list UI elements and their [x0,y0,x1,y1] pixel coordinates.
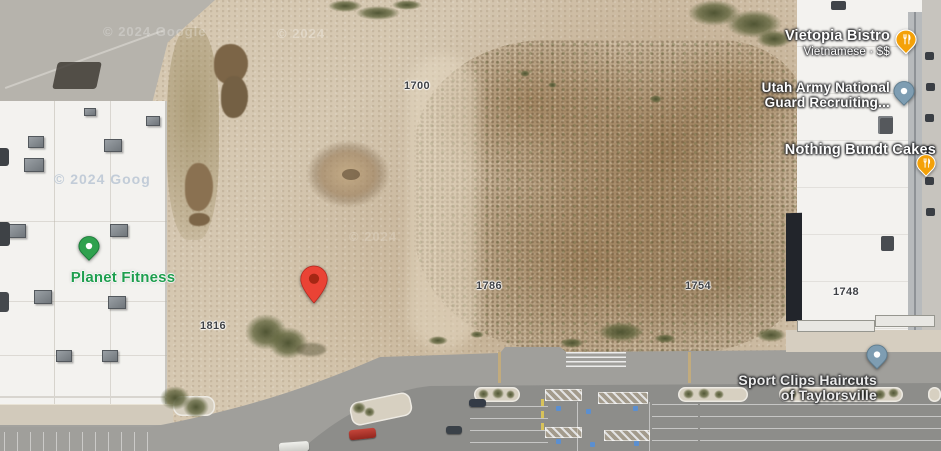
storefront-awning [797,320,875,332]
roof-unit [831,1,846,10]
yellow-curb-dash [541,411,544,418]
poi-sublabel-vietopia-bistro[interactable]: Vietnamese · $$ [740,46,890,58]
poi-label-planet-fitness[interactable]: Planet Fitness [38,270,208,286]
parcel-number-1816: 1816 [191,320,235,332]
light-pole [688,352,691,383]
light-pole [498,352,501,383]
roof-unit [881,236,894,251]
poi-label-utah-guard-line2[interactable]: Guard Recruiting... [720,96,890,110]
parcel-number-1786: 1786 [467,280,511,292]
storefront-awning [875,315,935,327]
roof-unit [878,116,893,134]
restaurant-pin-icon[interactable] [895,27,917,57]
parcel-number-1700: 1700 [395,80,439,92]
parcel-number-1754: 1754 [676,280,720,292]
building-shadow-strip [786,213,802,322]
poi-label-vietopia-bistro[interactable]: Vietopia Bistro [740,29,890,44]
place-pin-icon[interactable] [893,78,915,109]
poi-label-sport-clips-line2[interactable]: of Taylorsville [700,388,877,403]
poi-label-nothing-bundt-cakes[interactable]: Nothing Bundt Cakes [766,143,936,158]
poi-label-utah-guard-line1[interactable]: Utah Army National [720,81,890,95]
restaurant-pin-icon[interactable] [916,152,936,179]
satellite-map[interactable]: © 2024 Google © 2024 © 2024 Goog © 2024 … [0,0,941,451]
poi-label-sport-clips-line1[interactable]: Sport Clips Haircuts [700,373,877,388]
building-apron [786,330,941,352]
parcel-number-1748: 1748 [824,286,868,298]
place-pin-icon[interactable] [866,342,888,372]
dropped-pin-marker[interactable] [299,264,329,305]
crosswalk [566,352,626,369]
place-pin-icon[interactable] [78,233,100,264]
yellow-curb-dash [541,423,544,430]
yellow-curb-dash [541,399,544,406]
